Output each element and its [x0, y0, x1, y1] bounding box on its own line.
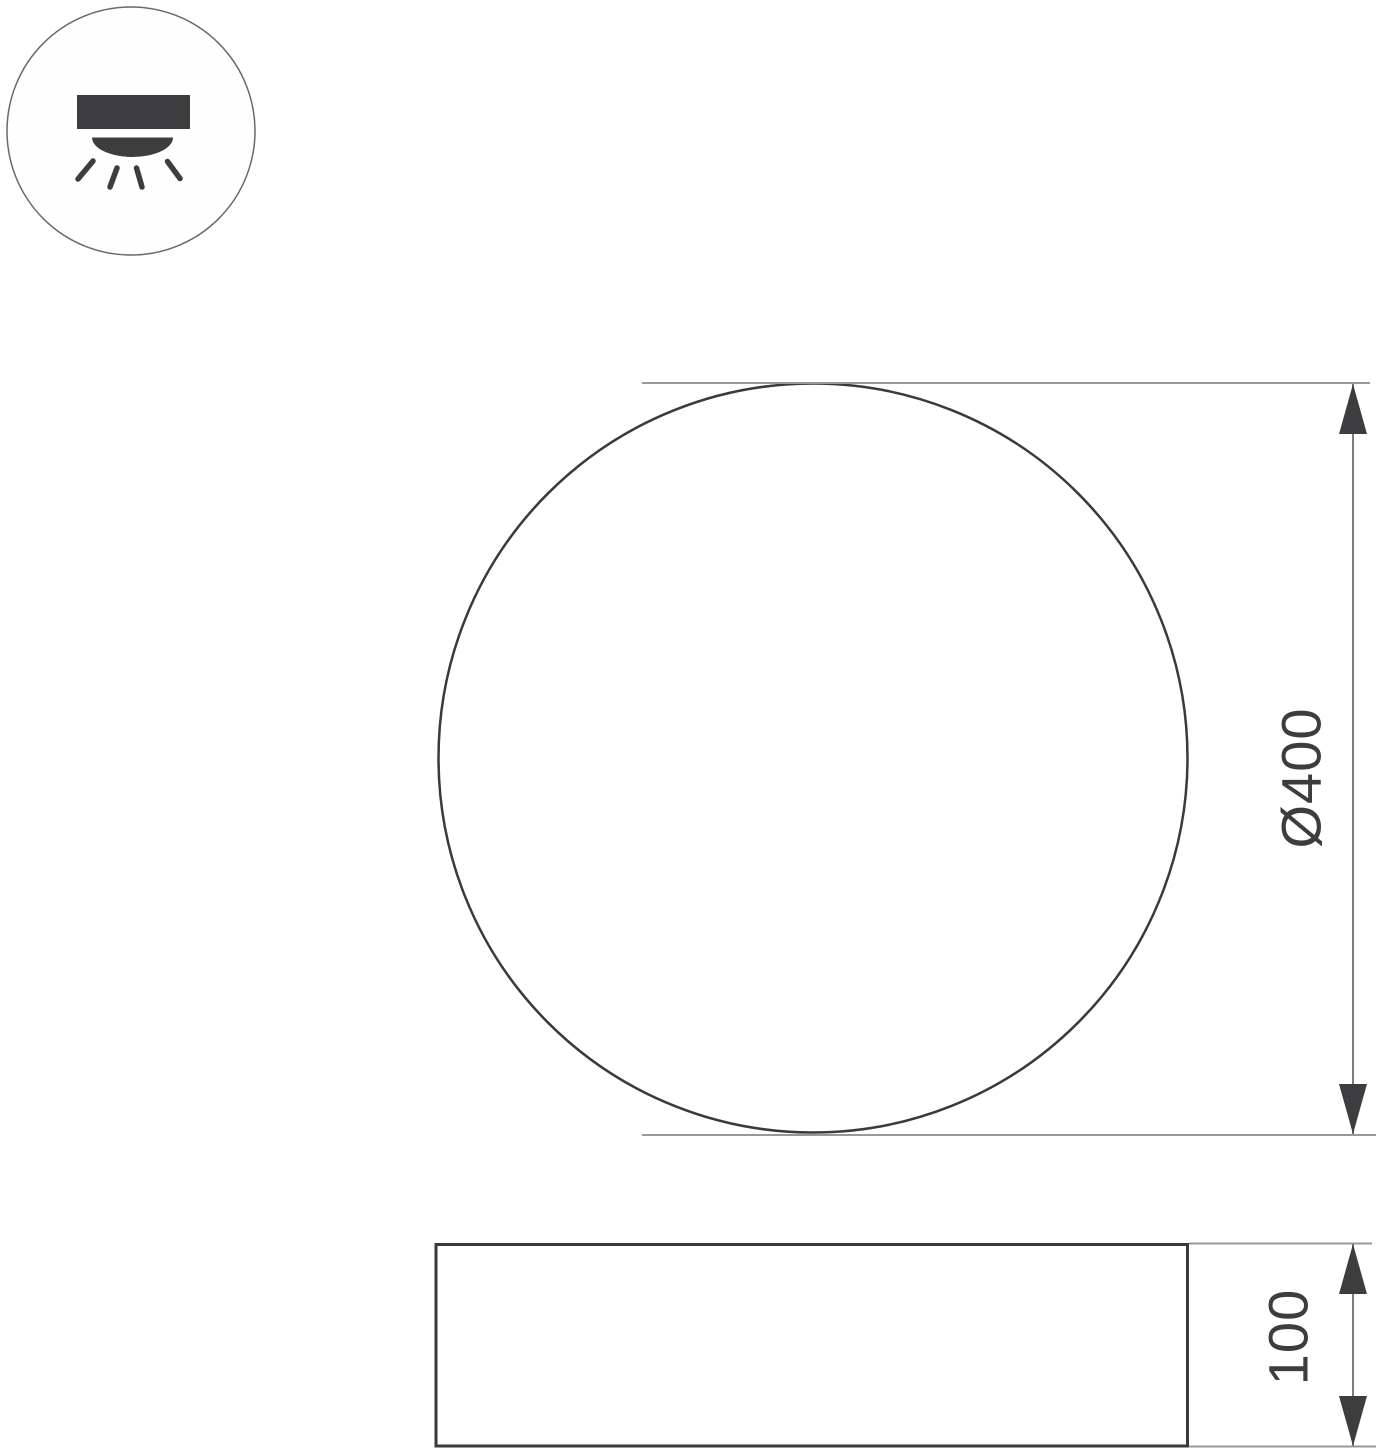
dimension-drawing: Ø400 100 [0, 0, 1376, 1454]
arrow-up-icon [1339, 1244, 1367, 1294]
arrow-down-icon [1339, 1396, 1367, 1446]
technical-drawing-page: Ø400 100 [0, 0, 1376, 1454]
arrow-up-icon [1339, 384, 1367, 434]
arrow-down-icon [1339, 1084, 1367, 1134]
height-label: 100 [1257, 1289, 1320, 1385]
fixture-body [77, 95, 190, 129]
side-view: 100 [436, 1244, 1376, 1447]
fixture-plan-circle [439, 384, 1188, 1133]
icon-ring [7, 7, 255, 255]
plan-view: Ø400 [439, 383, 1376, 1135]
fixture-side-rectangle [436, 1245, 1188, 1447]
surface-mount-light-icon [7, 7, 255, 255]
diameter-label: Ø400 [1270, 708, 1333, 849]
